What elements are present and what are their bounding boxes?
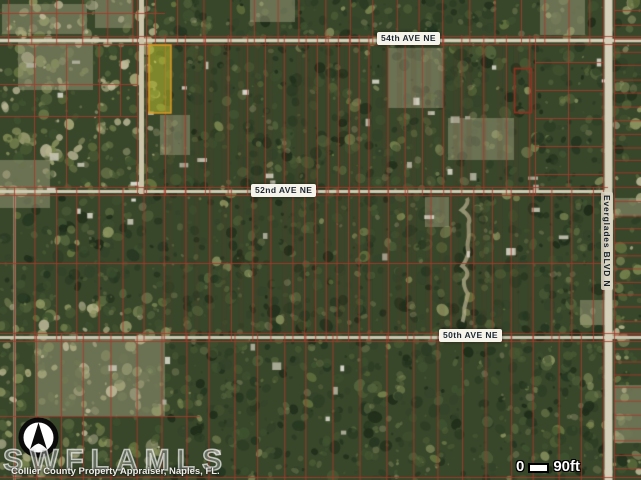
aerial-parcel-map-canvas[interactable] [0,0,641,480]
map-viewport[interactable]: 54th AVE NE 52nd AVE NE 50th AVE NE Ever… [0,0,641,480]
street-label-52nd-ave-ne: 52nd AVE NE [251,184,316,197]
attribution-text: Collier County Property Appraiser, Naple… [11,466,220,477]
scale-bar: 0 90ft [516,458,580,475]
scale-zero-label: 0 [516,458,524,475]
street-label-50th-ave-ne: 50th AVE NE [439,329,502,342]
street-label-54th-ave-ne: 54th AVE NE [377,32,440,45]
street-label-everglades-blvd-n: Everglades BLVD N [601,192,613,290]
scale-max-label: 90ft [553,458,580,475]
scale-bar-segment [528,463,549,473]
